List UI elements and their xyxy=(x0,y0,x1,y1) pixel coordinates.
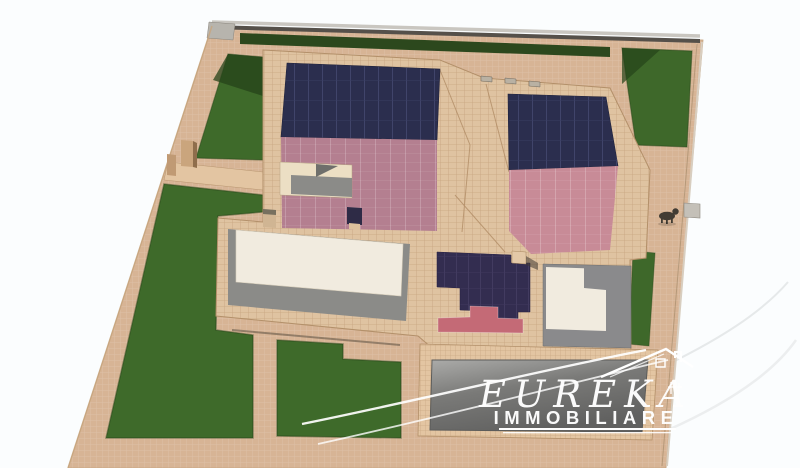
solar-array-right xyxy=(508,94,618,170)
house-roof xyxy=(216,50,650,350)
solar-array-left xyxy=(281,63,440,140)
villa-3d-render: EUREKA IMMOBILIARE xyxy=(0,0,800,468)
watermark-underline-2 xyxy=(503,432,672,433)
wall-corner-pillar xyxy=(207,22,235,40)
gate-pillar xyxy=(181,140,193,167)
side-patio xyxy=(543,264,631,348)
watermark-underline-1 xyxy=(499,428,676,430)
pink-roof-right xyxy=(509,166,618,254)
wall-gate-box xyxy=(684,203,700,218)
watermark-subtitle: IMMOBILIARE xyxy=(494,407,679,428)
aerial-render-canvas: EUREKA IMMOBILIARE xyxy=(0,0,800,468)
roof-terrace-inset xyxy=(280,162,352,198)
gate-pillar-small xyxy=(167,154,176,176)
center-chimney xyxy=(512,251,526,264)
